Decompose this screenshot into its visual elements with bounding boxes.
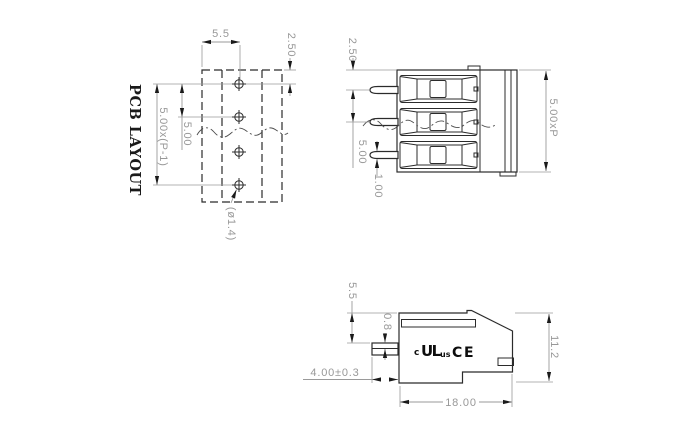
dim-pin-pitch-label: 5.00	[356, 140, 368, 165]
dim-footprint-width: 5.5	[202, 28, 240, 79]
dim-overall-length: 5.00xP	[519, 70, 559, 172]
dim-edge-to-hole: 2.50	[246, 33, 297, 96]
ul-mark-c: c	[414, 348, 419, 358]
ce-mark-c: C	[452, 345, 462, 361]
dim-overall-length-label: 5.00xP	[547, 98, 559, 137]
dim-footprint-width-label: 5.5	[212, 28, 230, 40]
body-bottom-tab	[500, 172, 516, 176]
mounting-hole	[232, 110, 246, 124]
dim-hole-diameter: (ø1.4)	[225, 190, 237, 242]
drawing-canvas: PCB LAYOUT	[0, 0, 680, 440]
dim-pin-thickness-label: 0.8	[381, 313, 393, 331]
dim-pin-width-label: 1.00	[372, 174, 384, 199]
front-view: 2.50 5.00 1.00 5.00xP	[346, 38, 559, 199]
dim-hole-diameter-label: (ø1.4)	[225, 207, 237, 241]
ce-mark-e: E	[464, 345, 474, 361]
mounting-holes	[232, 77, 246, 192]
mounting-hole	[232, 145, 246, 159]
pin	[370, 87, 398, 94]
dim-top-to-pin-label: 5.5	[346, 282, 358, 300]
dim-pin-pitch: 5.00	[346, 90, 369, 168]
pcb-layout-title: PCB LAYOUT	[126, 84, 143, 196]
dim-hole-pitch: 5.00	[178, 84, 232, 150]
pcb-layout-view: PCB LAYOUT	[126, 28, 297, 241]
dim-body-height-label: 11.2	[548, 335, 560, 359]
dim-pin-width: 1.00	[372, 141, 384, 198]
pin	[370, 152, 398, 159]
dim-edge-to-pin-label: 2.50	[346, 38, 358, 63]
dim-edge-to-hole-label: 2.50	[285, 33, 297, 58]
dim-edge-to-pin: 2.50	[346, 38, 396, 90]
dim-body-height: 11.2	[515, 313, 560, 382]
solder-pins	[370, 87, 398, 159]
break-line	[197, 128, 288, 137]
technical-drawing-page: PCB LAYOUT	[0, 0, 680, 440]
dim-hole-span-label: 5.00x(P-1)	[157, 107, 169, 166]
mounting-hole	[232, 178, 246, 192]
ul-mark-icon: UL	[421, 342, 442, 360]
ul-mark-us: us	[440, 350, 451, 359]
dim-body-depth-label: 18.00	[445, 397, 477, 409]
dim-hole-pitch-label: 5.00	[181, 122, 193, 147]
dim-pin-length: 4.00±0.3	[303, 357, 398, 383]
mounting-hole	[232, 77, 246, 91]
front-view-body	[397, 70, 517, 172]
dim-pin-length-label: 4.00±0.3	[310, 367, 359, 379]
side-view: c UL us C E 5.5 0.8 4.00±0.3	[303, 282, 560, 409]
